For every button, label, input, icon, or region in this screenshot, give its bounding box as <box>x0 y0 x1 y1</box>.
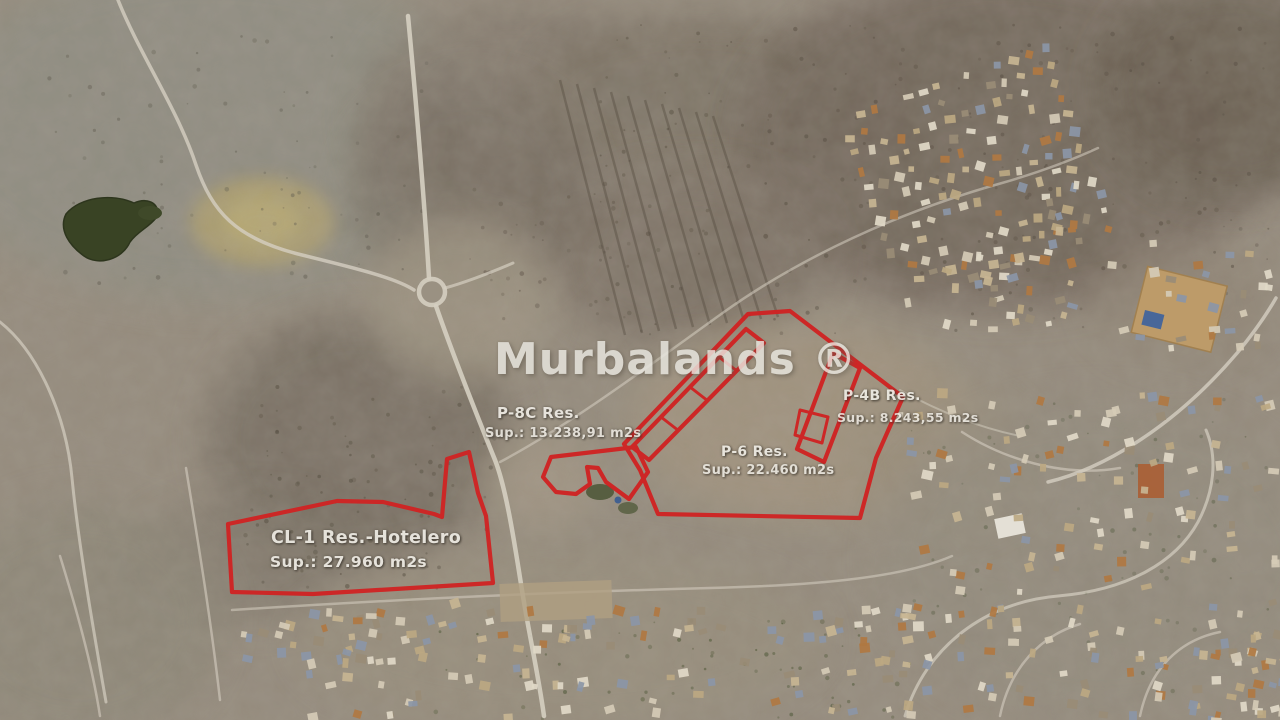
parcel-label-cl1-name: CL-1 Res.-Hotelero <box>271 528 461 548</box>
pool-dot <box>615 497 622 504</box>
parcel-label-p4b-name: P-4B Res. <box>843 388 921 404</box>
roundabout <box>419 279 445 305</box>
parcel-label-p8c-area: Sup.: 13.238,91 m2s <box>485 426 641 441</box>
watermark-text: Murbalands ® <box>494 334 857 385</box>
parcel-label-cl1-area: Sup.: 27.960 m2s <box>270 553 427 571</box>
parcel-label-p6-area: Sup.: 22.460 m2s <box>702 463 834 478</box>
aerial-map: Murbalands ® CL-1 Res.-Hotelero Sup.: 27… <box>0 0 1280 720</box>
parcel-label-p8c-name: P-8C Res. <box>497 404 580 422</box>
bare-field <box>499 580 612 622</box>
parcel-label-p4b-area: Sup.: 8.243,55 m2s <box>837 410 979 425</box>
parcel-label-p6-name: P-6 Res. <box>721 444 788 460</box>
